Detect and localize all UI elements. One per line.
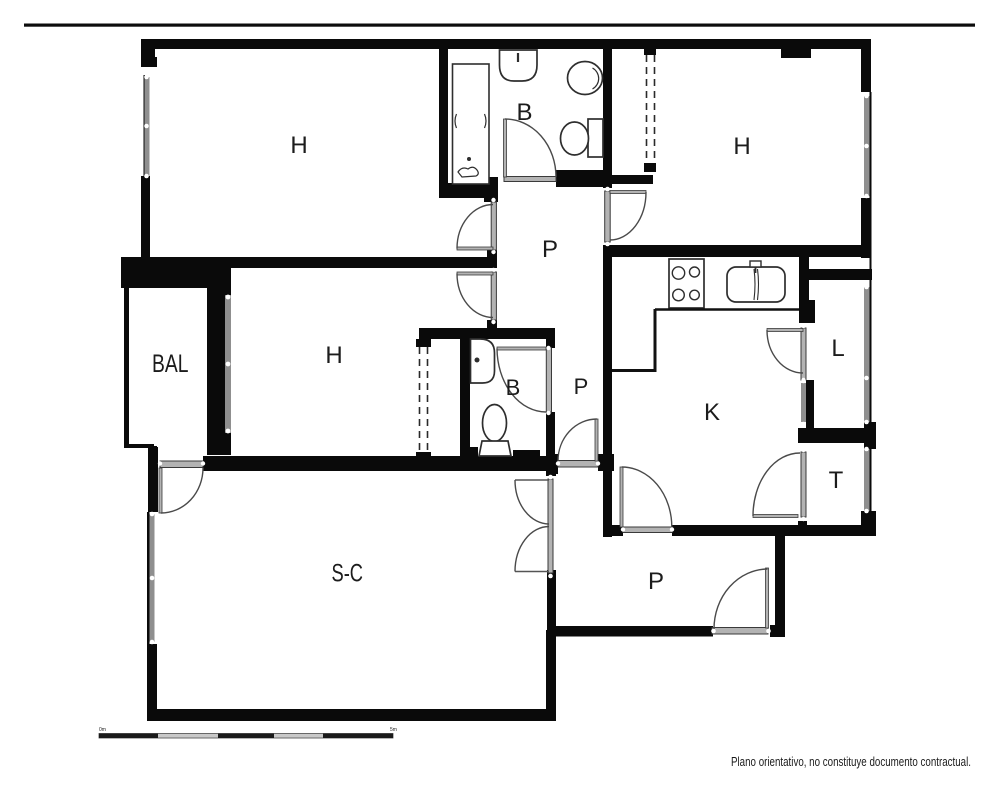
svg-text:H: H <box>325 342 342 369</box>
svg-text:5m: 5m <box>390 727 397 733</box>
svg-text:K: K <box>704 399 720 426</box>
svg-text:B: B <box>516 99 532 126</box>
svg-text:B: B <box>506 375 521 400</box>
svg-text:P: P <box>542 236 558 263</box>
svg-text:P: P <box>648 568 664 595</box>
svg-text:Plano orientativo, no constitu: Plano orientativo, no constituye documen… <box>731 754 971 769</box>
svg-text:BAL: BAL <box>152 350 189 378</box>
svg-text:S-C: S-C <box>332 560 364 588</box>
svg-text:L: L <box>831 335 844 362</box>
svg-text:T: T <box>829 467 844 494</box>
svg-text:0m: 0m <box>99 727 106 733</box>
svg-text:P: P <box>574 374 589 399</box>
svg-text:H: H <box>290 132 307 159</box>
svg-text:H: H <box>733 133 750 160</box>
